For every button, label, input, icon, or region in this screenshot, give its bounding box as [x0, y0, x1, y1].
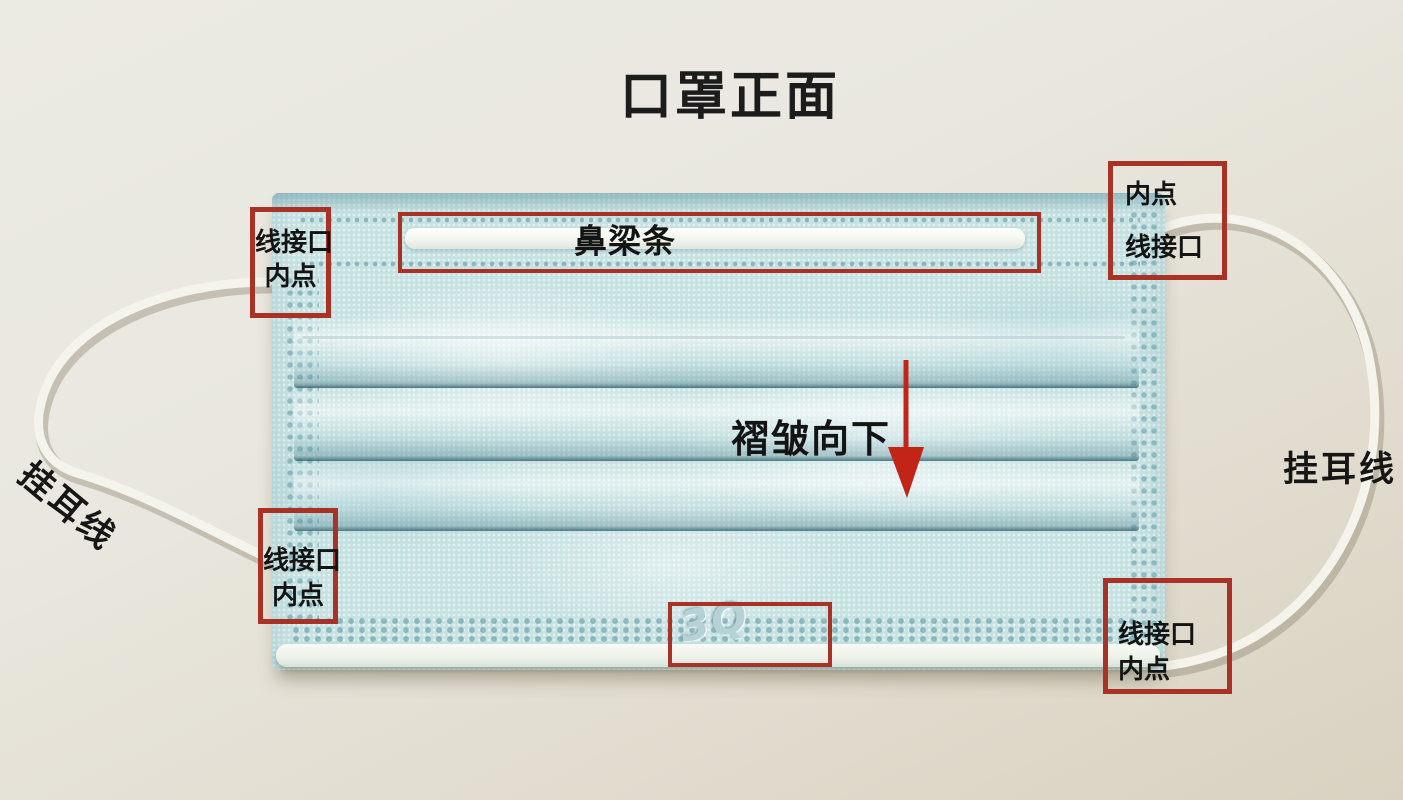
mask-top-edge [272, 193, 1165, 213]
callout-text: 内点 [263, 579, 333, 613]
pleat-direction-label: 褶皱向下 [731, 408, 891, 463]
page-title: 口罩正面 [560, 54, 900, 129]
callout-text: 线接口 [1125, 231, 1222, 265]
callout-box-bottom-right: 线接口 内点 [1103, 578, 1232, 694]
ear-line-label-left: 挂耳线 [9, 448, 129, 560]
callout-box-top-right: 内点 线接口 [1108, 161, 1227, 280]
callout-text: 内点 [255, 260, 326, 294]
callout-box-logo [668, 602, 832, 667]
callout-text: 线接口 [263, 544, 333, 578]
callout-box-bottom-left: 线接口 内点 [258, 508, 338, 624]
nose-bridge-label: 鼻梁条 [574, 219, 676, 263]
pleat-fold [294, 461, 1139, 531]
callout-text: 线接口 [255, 226, 326, 260]
ear-line-label-right: 挂耳线 [1283, 441, 1397, 492]
pleat-fold [294, 388, 1139, 461]
callout-text: 内点 [1125, 178, 1222, 212]
callout-box-nose-bridge: 鼻梁条 [398, 212, 1041, 273]
callout-box-top-left: 线接口 内点 [250, 207, 331, 318]
annotated-mask-figure: 口罩正面 [0, 0, 1403, 800]
callout-text: 内点 [1118, 653, 1227, 687]
pleat-fold [294, 315, 1139, 388]
callout-text: 线接口 [1118, 618, 1227, 652]
